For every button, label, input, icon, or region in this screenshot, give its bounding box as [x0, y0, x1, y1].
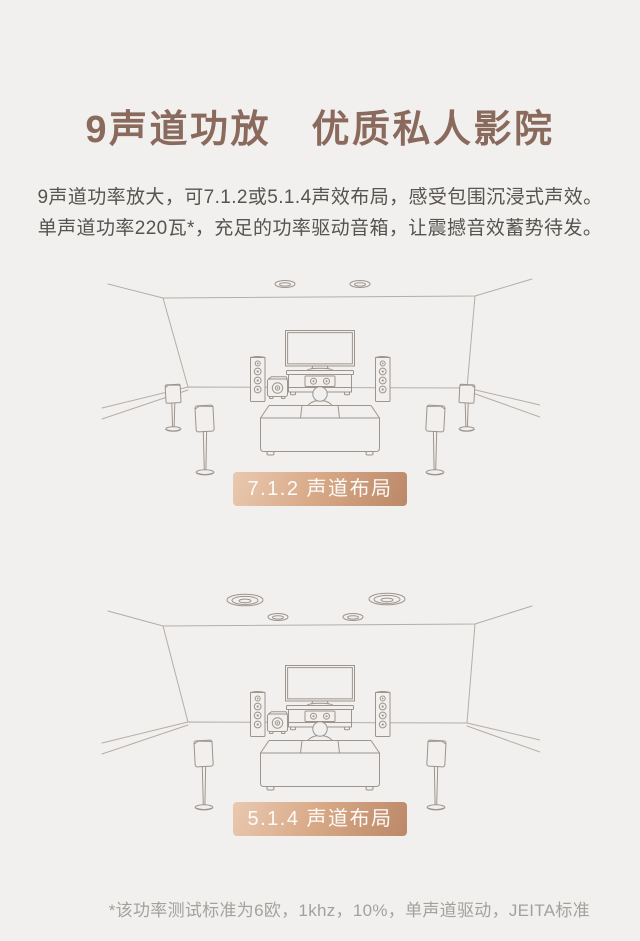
ceiling-speaker	[227, 594, 263, 606]
page-title: 9声道功放 优质私人影院	[0, 0, 640, 152]
room-diagram-5-1-4	[100, 580, 540, 820]
ceiling-speaker	[369, 593, 405, 605]
rear-surround-speaker-left	[194, 740, 213, 810]
rear-surround-speaker-right	[426, 405, 445, 475]
rear-surround-speaker-left	[195, 405, 214, 475]
subwoofer	[268, 712, 288, 734]
ceiling-speakers	[275, 281, 370, 288]
footnote: *该功率测试标准为6欧，1khz，10%，单声道驱动，JEITA标准	[0, 896, 640, 921]
ceiling-speaker	[268, 614, 288, 621]
diagram-caption-row: 7.1.2 声道布局	[0, 472, 640, 506]
tower-speaker-right	[376, 357, 391, 402]
tower-speaker-left	[251, 357, 266, 402]
subwoofer	[268, 377, 288, 399]
tower-speaker-right	[376, 692, 391, 737]
layout-badge-7-1-2: 7.1.2 声道布局	[233, 472, 406, 506]
ceiling-speaker	[343, 614, 363, 621]
ceiling-speaker	[275, 281, 295, 288]
tv	[286, 331, 355, 373]
tv	[286, 666, 355, 708]
side-surround-speaker-left	[165, 384, 181, 431]
diagram-caption-row: 5.1.4 声道布局	[0, 802, 640, 836]
intro-line-2: 单声道功率220瓦*，充足的功率驱动音箱，让震撼音效蓄势待发。	[38, 218, 603, 239]
ceiling-speakers	[227, 593, 405, 620]
layout-badge-5-1-4: 5.1.4 声道布局	[233, 802, 406, 836]
side-surround-speaker-right	[459, 384, 475, 431]
intro-line-1: 9声道功率放大，可7.1.2或5.1.4声效布局，感受包围沉浸式声效。	[37, 187, 602, 208]
sofa	[261, 406, 380, 456]
tower-speaker-left	[251, 692, 266, 737]
sofa	[261, 741, 380, 791]
intro-paragraph: 9声道功率放大，可7.1.2或5.1.4声效布局，感受包围沉浸式声效。 单声道功…	[0, 182, 640, 244]
rear-surround-speaker-right	[427, 740, 446, 810]
ceiling-speaker	[350, 281, 370, 288]
room-diagram-7-1-2	[100, 270, 540, 485]
